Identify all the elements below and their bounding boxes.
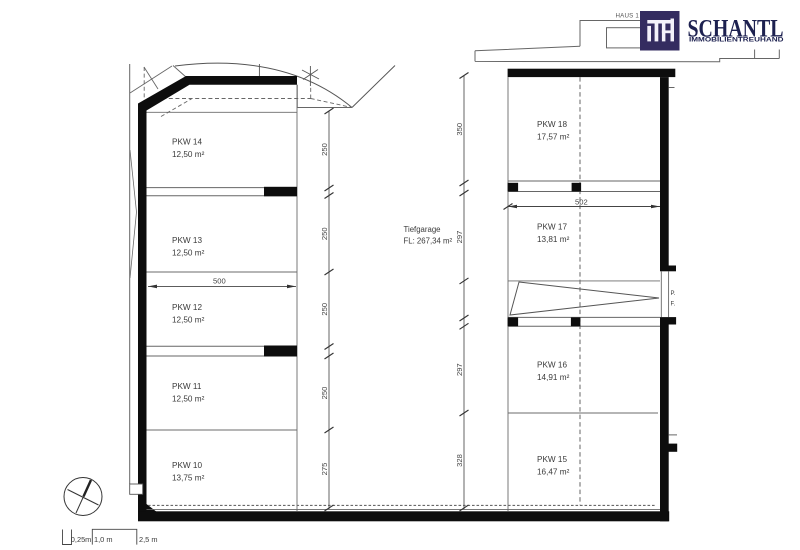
svg-text:13,75 m²: 13,75 m² [172, 474, 205, 483]
svg-text:PKW 17: PKW 17 [537, 223, 567, 232]
svg-text:F.: F. [671, 302, 676, 308]
svg-text:17,57 m²: 17,57 m² [537, 133, 570, 142]
svg-text:IMMOBILIENTREUHAND: IMMOBILIENTREUHAND [689, 37, 784, 44]
svg-text:PKW 11: PKW 11 [172, 382, 202, 391]
svg-text:2,5 m: 2,5 m [139, 535, 157, 544]
svg-text:PKW 13: PKW 13 [172, 236, 202, 245]
svg-text:0,25m: 0,25m [71, 535, 92, 544]
svg-text:12,50 m²: 12,50 m² [172, 316, 205, 325]
svg-text:FL: 267,34 m²: FL: 267,34 m² [404, 237, 453, 246]
svg-text:PKW 16: PKW 16 [537, 361, 567, 370]
svg-text:500: 500 [213, 277, 226, 286]
svg-text:250: 250 [320, 227, 329, 240]
svg-text:1,0 m: 1,0 m [94, 535, 112, 544]
svg-text:PKW 10: PKW 10 [172, 461, 202, 470]
svg-text:P.: P. [671, 291, 676, 297]
svg-text:250: 250 [320, 143, 329, 156]
svg-text:502: 502 [575, 197, 588, 206]
svg-text:PKW 18: PKW 18 [537, 120, 567, 129]
svg-text:275: 275 [320, 463, 329, 476]
svg-text:16,47 m²: 16,47 m² [537, 468, 570, 477]
svg-text:250: 250 [320, 387, 329, 400]
svg-text:14,91 m²: 14,91 m² [537, 373, 570, 382]
svg-text:12,50 m²: 12,50 m² [172, 150, 205, 159]
svg-text:12,50 m²: 12,50 m² [172, 395, 205, 404]
svg-text:PKW 14: PKW 14 [172, 138, 202, 147]
svg-text:297: 297 [455, 231, 464, 244]
svg-text:328: 328 [455, 454, 464, 467]
svg-text:297: 297 [455, 363, 464, 376]
svg-text:PKW 12: PKW 12 [172, 303, 202, 312]
svg-text:PKW 15: PKW 15 [537, 455, 567, 464]
svg-text:350: 350 [455, 123, 464, 136]
svg-text:Tiefgarage: Tiefgarage [404, 225, 441, 234]
svg-text:250: 250 [320, 303, 329, 316]
svg-text:13,81 m²: 13,81 m² [537, 235, 570, 244]
svg-text:HAUS 1: HAUS 1 [616, 13, 640, 20]
svg-text:12,50 m²: 12,50 m² [172, 249, 205, 258]
